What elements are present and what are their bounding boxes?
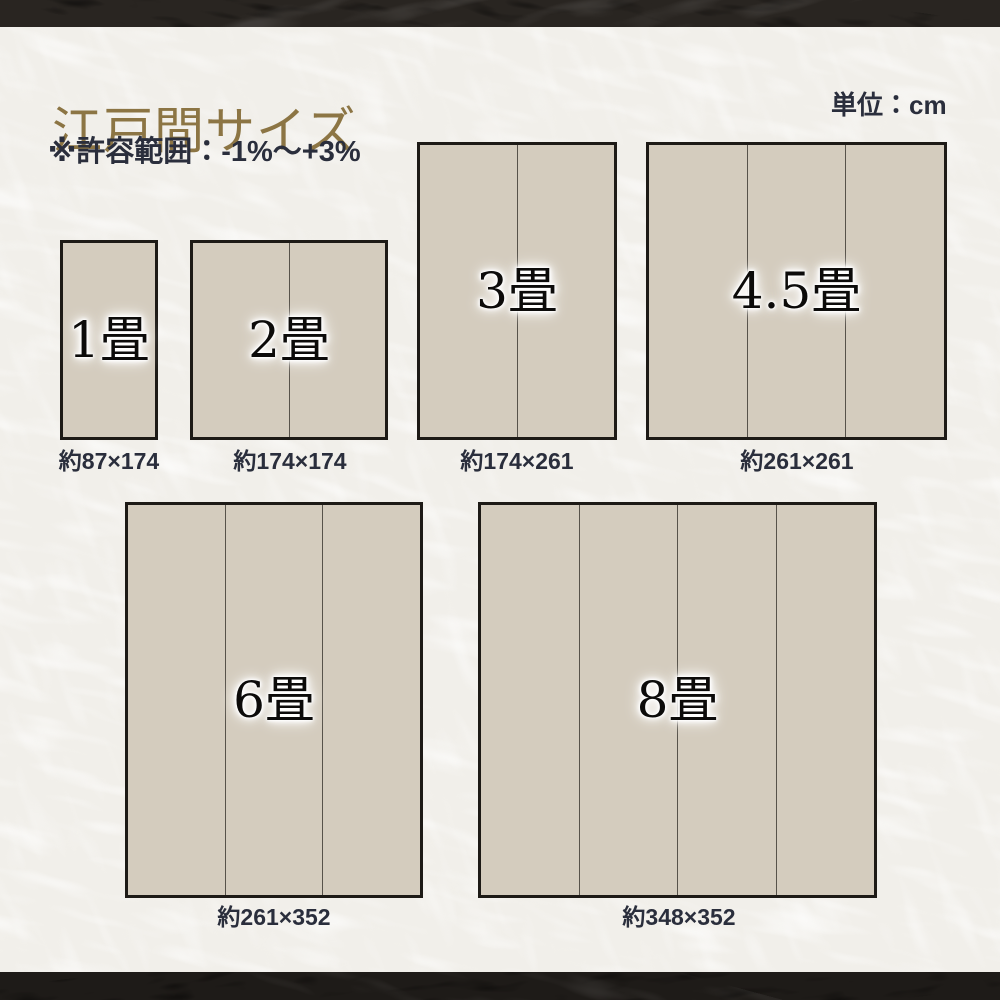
tatami-panel bbox=[322, 505, 420, 895]
mat-dimensions-label: 約174×174 bbox=[233, 450, 346, 473]
mat-size-label: 1畳 bbox=[68, 315, 150, 365]
bottom-border-bar bbox=[0, 972, 1000, 1000]
mat-size-label: 2畳 bbox=[248, 315, 330, 365]
mat-6jo: 6畳 bbox=[125, 502, 423, 898]
mat-dimensions-label: 約87×174 bbox=[59, 450, 159, 473]
mat-dimensions-label: 約261×261 bbox=[740, 450, 853, 473]
mat-size-label: 6畳 bbox=[233, 675, 315, 725]
mat-dimensions-label: 約348×352 bbox=[622, 906, 735, 929]
unit-label: 単位：cm bbox=[831, 92, 947, 118]
tolerance-note: ※許容範囲：-1%～+3% bbox=[48, 138, 361, 167]
mat-2jo: 2畳 bbox=[190, 240, 388, 440]
tatami-panel bbox=[128, 505, 225, 895]
edoma-size-diagram: 江戸間サイズ ※許容範囲：-1%～+3% 単位：cm 1畳 約87×174 2畳… bbox=[0, 0, 1000, 1000]
mat-4-5jo: 4.5畳 bbox=[646, 142, 947, 440]
top-border-bar bbox=[0, 0, 1000, 27]
mat-size-label: 8畳 bbox=[637, 675, 719, 725]
top-bar-texture bbox=[0, 0, 1000, 27]
mat-size-label: 4.5畳 bbox=[732, 266, 862, 316]
mat-3jo: 3畳 bbox=[417, 142, 617, 440]
bottom-bar-texture bbox=[0, 972, 1000, 1000]
diagram-content: 江戸間サイズ ※許容範囲：-1%～+3% 単位：cm 1畳 約87×174 2畳… bbox=[0, 0, 1000, 1000]
mat-dimensions-label: 約174×261 bbox=[460, 450, 573, 473]
mat-size-label: 3畳 bbox=[476, 266, 558, 316]
mat-dimensions-label: 約261×352 bbox=[217, 906, 330, 929]
tatami-panel bbox=[776, 505, 875, 895]
mat-8jo: 8畳 bbox=[478, 502, 877, 898]
tatami-panel bbox=[481, 505, 579, 895]
mat-1jo: 1畳 bbox=[60, 240, 158, 440]
